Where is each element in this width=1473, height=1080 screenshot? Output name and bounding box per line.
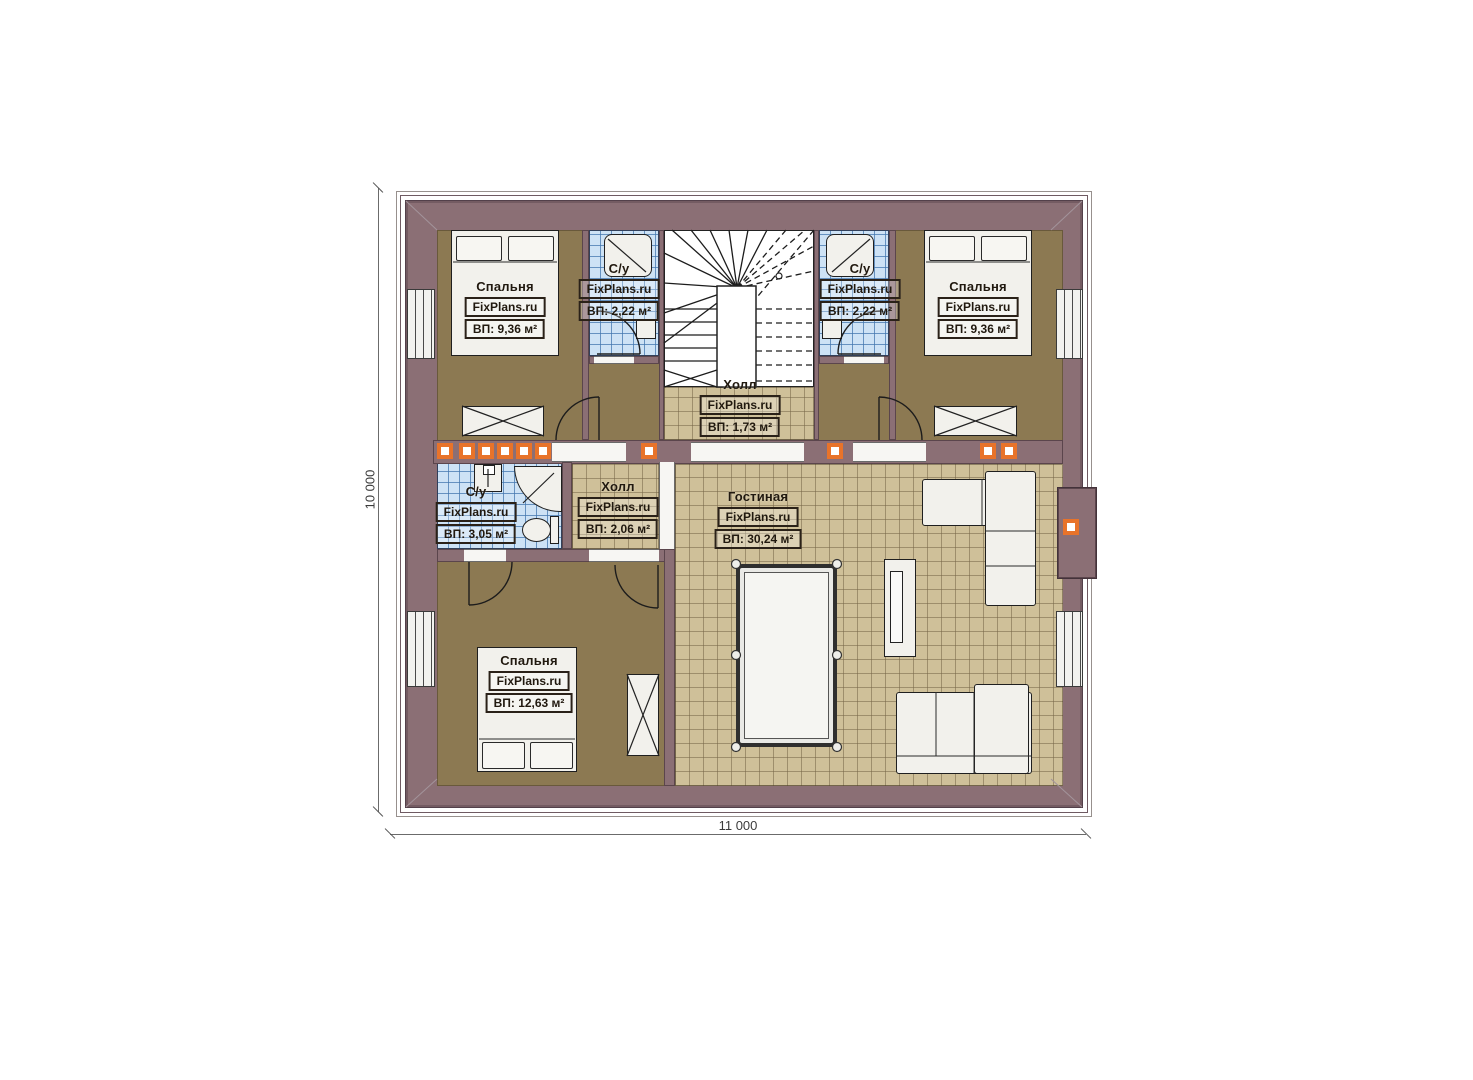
wall-marker	[516, 443, 532, 459]
billiard-table	[736, 564, 837, 747]
wardrobe	[934, 406, 1017, 436]
door-opening	[464, 549, 506, 562]
area-label: ВП: 1,73 м²	[700, 417, 780, 437]
room-name: Спальня	[500, 653, 558, 668]
room-label-bathroom-lower-left: С/у FixPlans.ru ВП: 3,05 м²	[436, 484, 517, 544]
door-opening	[552, 442, 626, 462]
pillow	[530, 742, 573, 769]
dimension-line-horizontal	[390, 834, 1086, 835]
wall-marker	[535, 443, 551, 459]
brand-label: FixPlans.ru	[436, 502, 517, 522]
pillow	[929, 236, 975, 261]
toilet-tank	[550, 516, 559, 544]
staircase	[664, 230, 814, 387]
room-name: Холл	[601, 479, 634, 494]
wall-marker	[1001, 443, 1017, 459]
brand-label: FixPlans.ru	[489, 671, 570, 691]
partition-wall	[814, 230, 819, 440]
wall-marker	[437, 443, 453, 459]
wardrobe	[462, 406, 544, 436]
room-name: С/у	[466, 484, 487, 499]
brand-label: FixPlans.ru	[718, 507, 799, 527]
passage-opening	[659, 462, 675, 549]
area-label: ВП: 9,36 м²	[938, 319, 1018, 339]
wall-marker	[478, 443, 494, 459]
room-label-bathroom-top-left: С/у FixPlans.ru ВП: 2,22 м²	[579, 261, 660, 321]
room-label-bedroom-top-left: Спальня FixPlans.ru ВП: 9,36 м²	[465, 279, 546, 339]
room-name: Холл	[723, 377, 756, 392]
dimension-height-label: 10 000	[363, 450, 378, 530]
wall-marker	[497, 443, 513, 459]
sink	[636, 319, 656, 339]
partition-wall	[562, 462, 572, 549]
door-opening	[589, 549, 659, 562]
passage-opening	[691, 442, 804, 462]
wall-marker	[827, 443, 843, 459]
wardrobe	[627, 674, 659, 756]
room-name: Спальня	[949, 279, 1007, 294]
room-label-hall-upper: Холл FixPlans.ru ВП: 1,73 м²	[700, 377, 781, 437]
room-name: Гостиная	[728, 489, 788, 504]
window	[407, 611, 435, 687]
area-label: ВП: 12,63 м²	[486, 693, 573, 713]
brand-label: FixPlans.ru	[579, 279, 660, 299]
brand-label: FixPlans.ru	[578, 497, 659, 517]
pillow	[981, 236, 1027, 261]
area-label: ВП: 2,22 м²	[579, 301, 659, 321]
pillow	[482, 742, 525, 769]
area-label: ВП: 30,24 м²	[715, 529, 802, 549]
area-label: ВП: 2,06 м²	[578, 519, 658, 539]
tv-stand	[884, 559, 916, 657]
corner-sofa-section	[985, 471, 1036, 606]
door-opening	[594, 356, 634, 364]
window	[1056, 289, 1083, 359]
wall-marker	[641, 443, 657, 459]
sink	[822, 319, 842, 339]
wall-marker	[980, 443, 996, 459]
wall-marker	[459, 443, 475, 459]
vent-marker	[1063, 519, 1079, 535]
area-label: ВП: 3,05 м²	[436, 524, 516, 544]
partition-wall	[659, 230, 664, 440]
partition-wall	[664, 549, 675, 786]
brand-label: FixPlans.ru	[938, 297, 1019, 317]
pillow	[508, 236, 554, 261]
dimension-line-vertical	[378, 188, 379, 812]
room-name: С/у	[609, 261, 630, 276]
sofa-chaise	[974, 684, 1029, 774]
window	[1056, 611, 1083, 687]
floor-plan: Спальня FixPlans.ru ВП: 9,36 м² С/у FixP…	[396, 191, 1092, 817]
room-name: С/у	[850, 261, 871, 276]
brand-label: FixPlans.ru	[700, 395, 781, 415]
area-label: ВП: 2,22 м²	[820, 301, 900, 321]
toilet	[522, 518, 551, 542]
pillow	[456, 236, 502, 261]
brand-label: FixPlans.ru	[820, 279, 901, 299]
floor-plan-page: 10 000 11 000	[0, 0, 1473, 1080]
window	[407, 289, 435, 359]
room-label-bathroom-top-right: С/у FixPlans.ru ВП: 2,22 м²	[820, 261, 901, 321]
door-opening	[853, 442, 926, 462]
room-label-hall-lower: Холл FixPlans.ru ВП: 2,06 м²	[578, 479, 659, 539]
room-label-bedroom-bottom-left: Спальня FixPlans.ru ВП: 12,63 м²	[486, 653, 573, 713]
door-opening	[844, 356, 884, 364]
room-label-bedroom-top-right: Спальня FixPlans.ru ВП: 9,36 м²	[938, 279, 1019, 339]
room-label-living-room: Гостиная FixPlans.ru ВП: 30,24 м²	[715, 489, 802, 549]
room-name: Спальня	[476, 279, 534, 294]
dimension-width-label: 11 000	[688, 818, 788, 833]
area-label: ВП: 9,36 м²	[465, 319, 545, 339]
brand-label: FixPlans.ru	[465, 297, 546, 317]
